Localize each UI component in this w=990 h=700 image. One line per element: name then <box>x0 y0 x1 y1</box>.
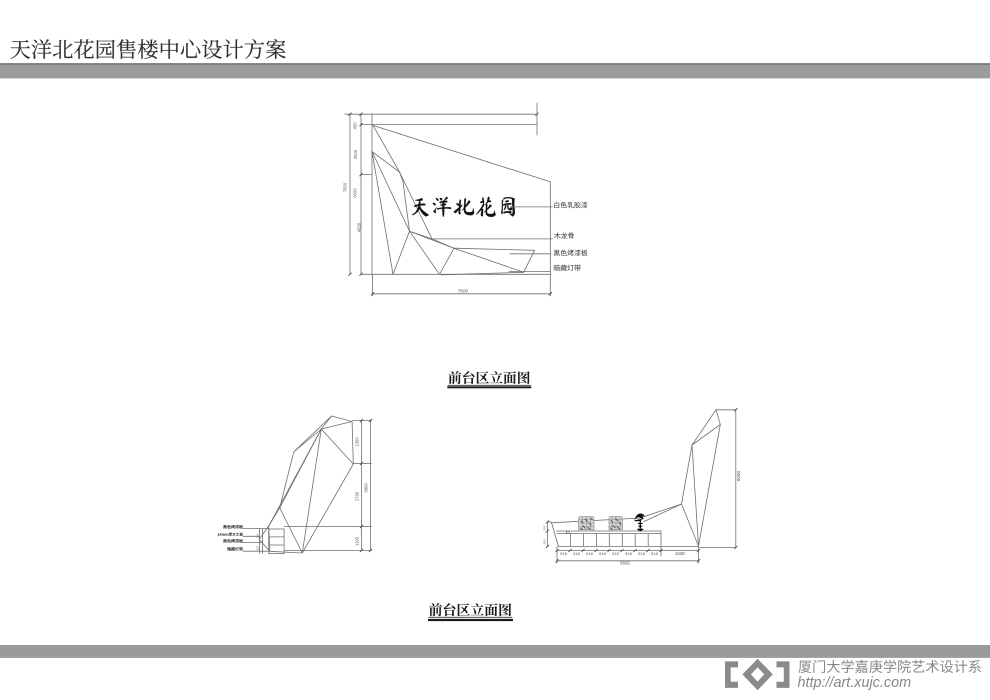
svg-text:518: 518 <box>651 551 658 556</box>
svg-text:250: 250 <box>255 533 259 538</box>
svg-text:450: 450 <box>353 122 358 130</box>
svg-text:518: 518 <box>560 551 567 556</box>
svg-text:380: 380 <box>543 539 547 544</box>
svg-text:1100: 1100 <box>355 536 360 546</box>
svg-text:75: 75 <box>567 530 571 534</box>
svg-text:250: 250 <box>255 545 259 550</box>
svg-text:518: 518 <box>573 551 580 556</box>
svg-text:518: 518 <box>599 551 606 556</box>
svg-text:2730: 2730 <box>355 491 360 501</box>
svg-text:518: 518 <box>625 551 632 556</box>
svg-text:5665: 5665 <box>620 561 630 566</box>
svg-text:1300: 1300 <box>355 437 360 447</box>
svg-text:6000: 6000 <box>736 470 741 481</box>
svg-text:7500: 7500 <box>458 289 469 294</box>
svg-text:1538: 1538 <box>675 551 685 556</box>
svg-text:6550: 6550 <box>353 188 358 198</box>
svg-text:7000: 7000 <box>343 182 348 192</box>
svg-text:2500: 2500 <box>353 149 358 159</box>
svg-text:http://art.xujc.com: http://art.xujc.com <box>798 675 912 691</box>
svg-text:100: 100 <box>543 525 547 530</box>
svg-text:4050: 4050 <box>357 222 362 232</box>
svg-text:518: 518 <box>612 551 619 556</box>
svg-text:518: 518 <box>638 551 645 556</box>
svg-text:518: 518 <box>586 551 593 556</box>
svg-text:5800: 5800 <box>364 482 369 492</box>
